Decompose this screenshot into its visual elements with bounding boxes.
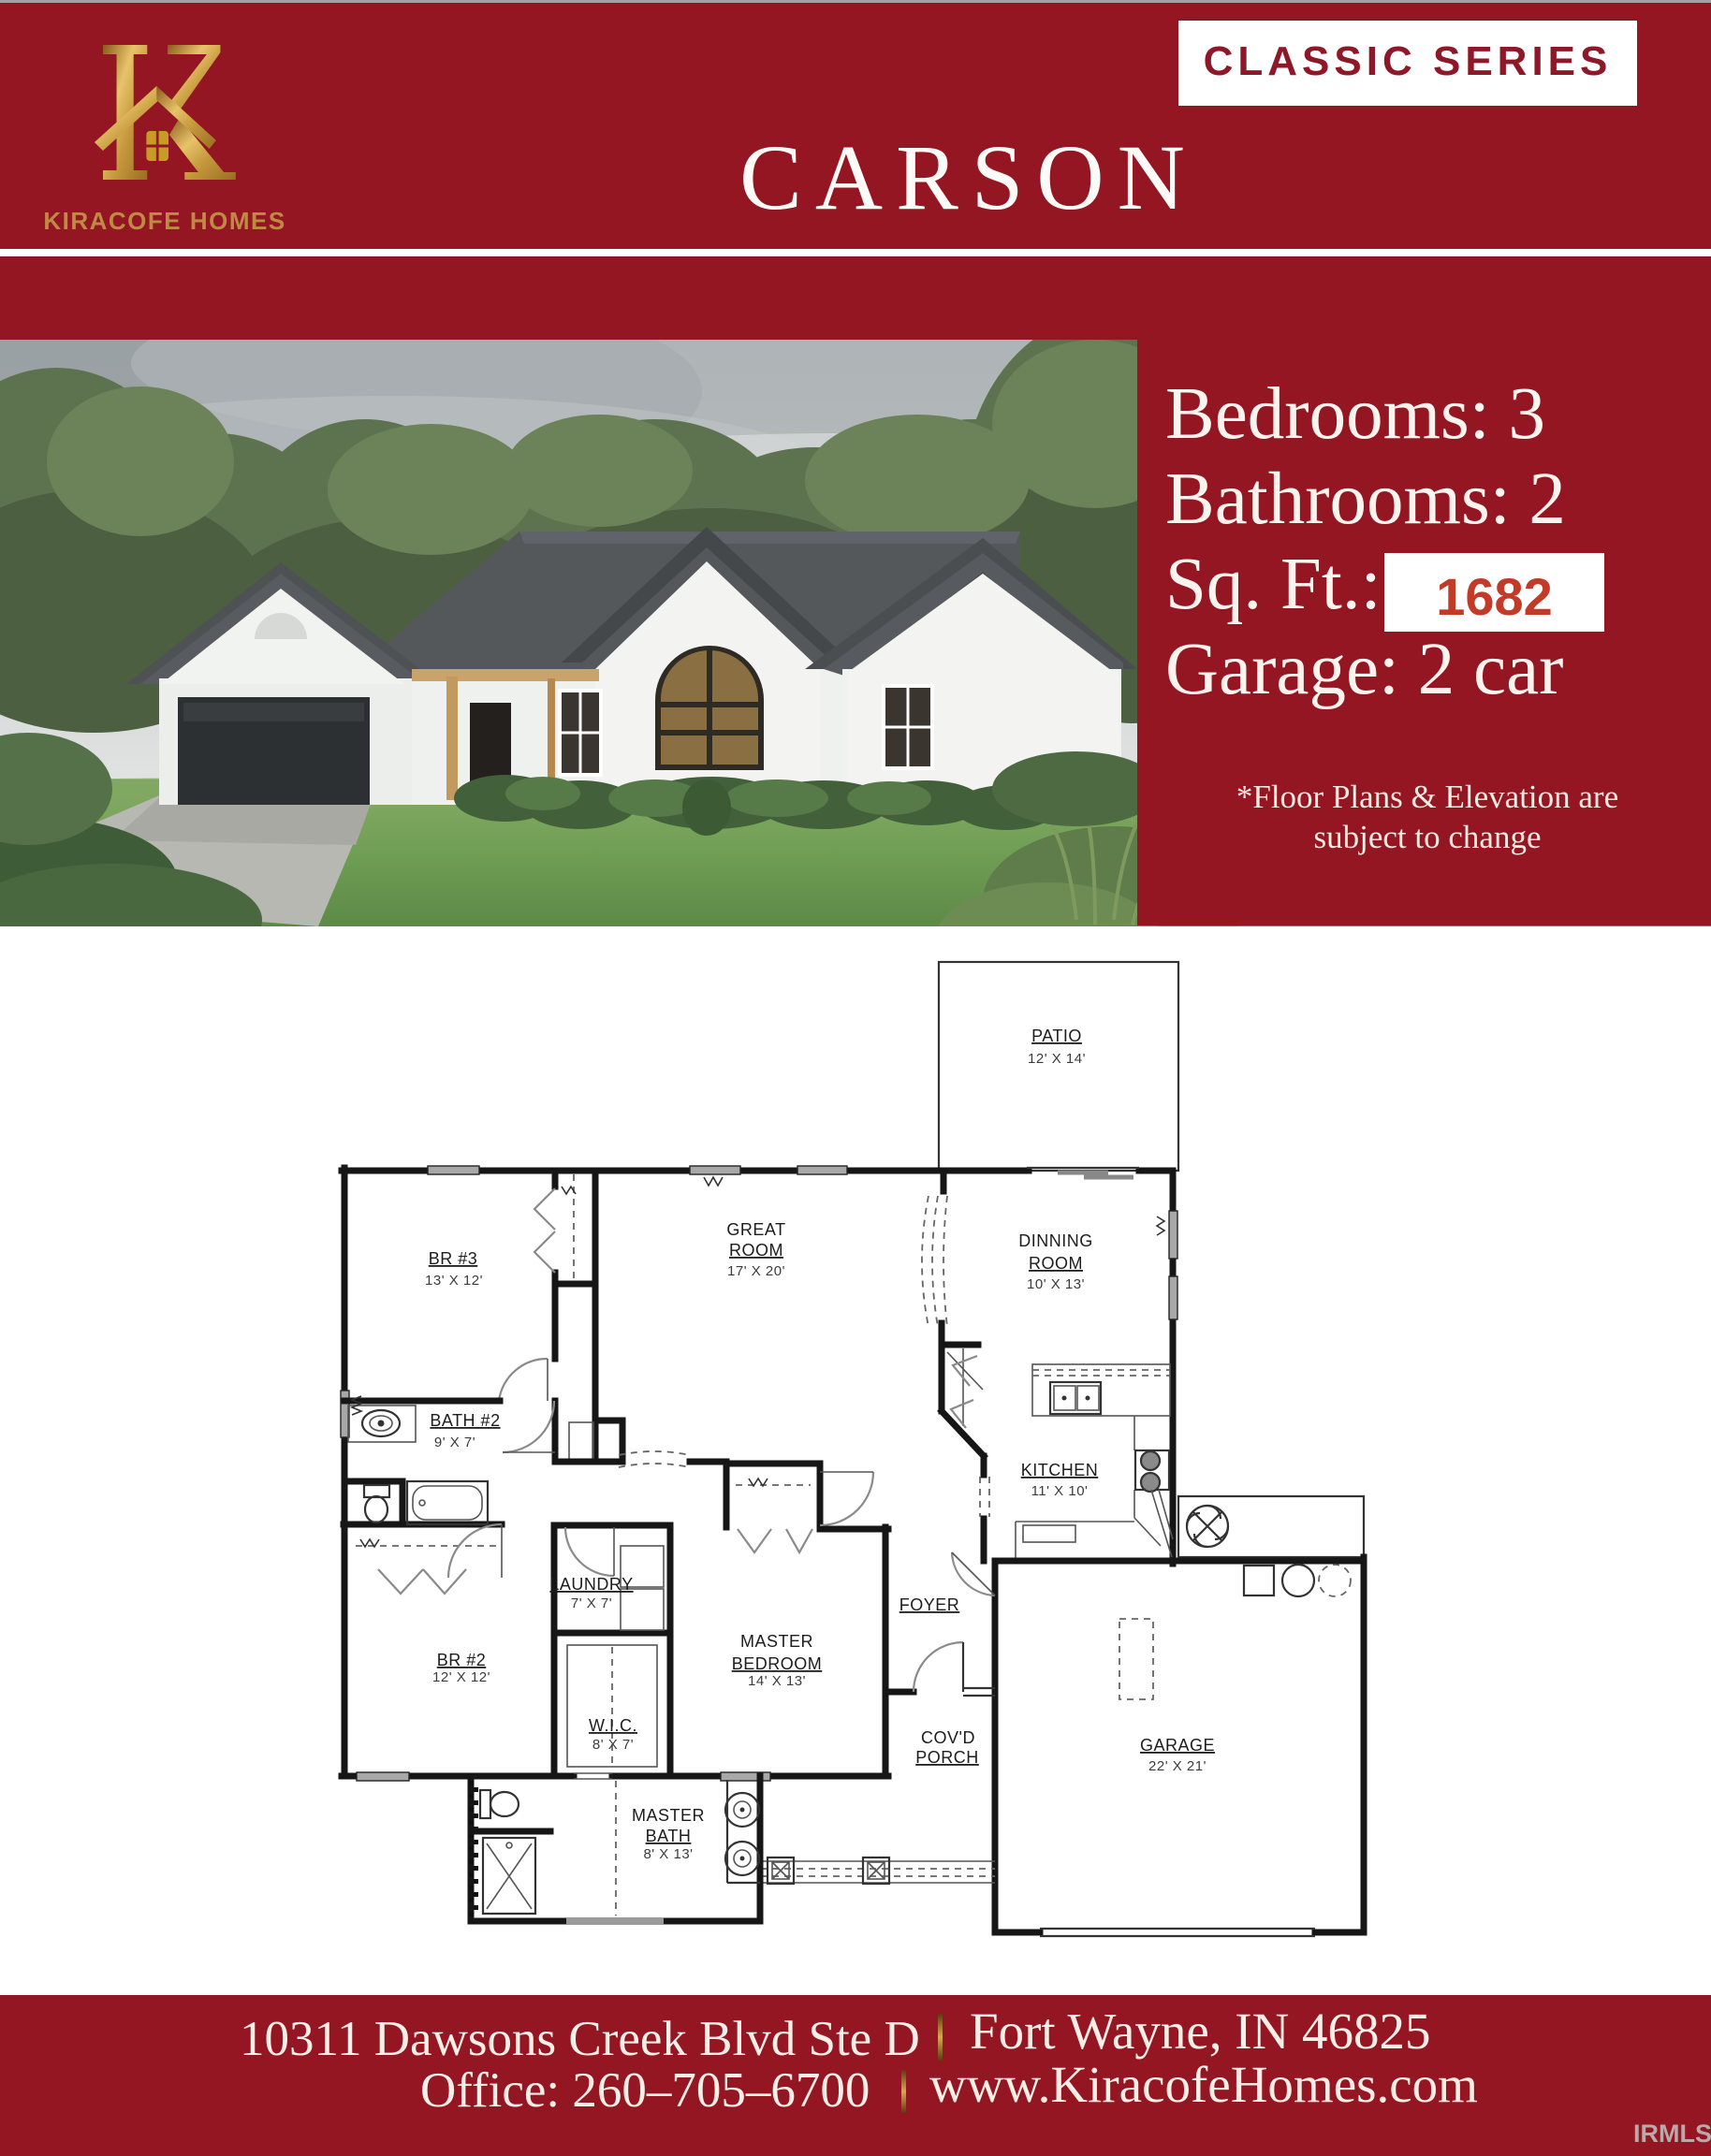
svg-text:BEDROOM: BEDROOM [732, 1654, 823, 1673]
svg-text:BATH #2: BATH #2 [430, 1411, 500, 1430]
svg-text:PORCH: PORCH [915, 1748, 979, 1767]
svg-text:LAUNDRY: LAUNDRY [549, 1575, 633, 1594]
svg-text:12' X 14': 12' X 14' [1028, 1051, 1086, 1067]
svg-text:MASTER: MASTER [740, 1632, 813, 1651]
svg-text:8' X 7': 8' X 7' [592, 1737, 634, 1753]
svg-text:13' X 12': 13' X 12' [425, 1273, 483, 1289]
svg-text:FOYER: FOYER [899, 1595, 960, 1614]
svg-text:ROOM: ROOM [1029, 1254, 1083, 1273]
svg-text:KITCHEN: KITCHEN [1021, 1461, 1099, 1479]
svg-text:14' X 13': 14' X 13' [748, 1673, 806, 1689]
svg-text:GARAGE: GARAGE [1140, 1736, 1215, 1755]
svg-text:MASTER: MASTER [632, 1806, 705, 1825]
svg-text:BR #2: BR #2 [437, 1651, 487, 1669]
svg-text:GREAT: GREAT [726, 1220, 785, 1239]
svg-text:ROOM: ROOM [729, 1241, 783, 1260]
svg-text:PATIO: PATIO [1031, 1027, 1082, 1045]
svg-text:10' X 13': 10' X 13' [1027, 1276, 1085, 1292]
svg-text:BR #3: BR #3 [429, 1249, 478, 1268]
svg-text:11' X 10': 11' X 10' [1031, 1483, 1089, 1499]
svg-text:COV'D: COV'D [921, 1728, 975, 1747]
svg-text:8' X 13': 8' X 13' [643, 1846, 693, 1862]
svg-text:22' X 21': 22' X 21' [1148, 1758, 1206, 1774]
svg-text:12' X 12': 12' X 12' [432, 1669, 490, 1685]
svg-text:W.I.C.: W.I.C. [589, 1716, 637, 1735]
svg-text:BATH: BATH [646, 1827, 692, 1845]
svg-text:7' X 7': 7' X 7' [571, 1595, 612, 1611]
svg-text:9' X 7': 9' X 7' [434, 1435, 475, 1450]
svg-text:17' X 20': 17' X 20' [727, 1263, 785, 1279]
svg-text:DINNING: DINNING [1018, 1231, 1093, 1250]
